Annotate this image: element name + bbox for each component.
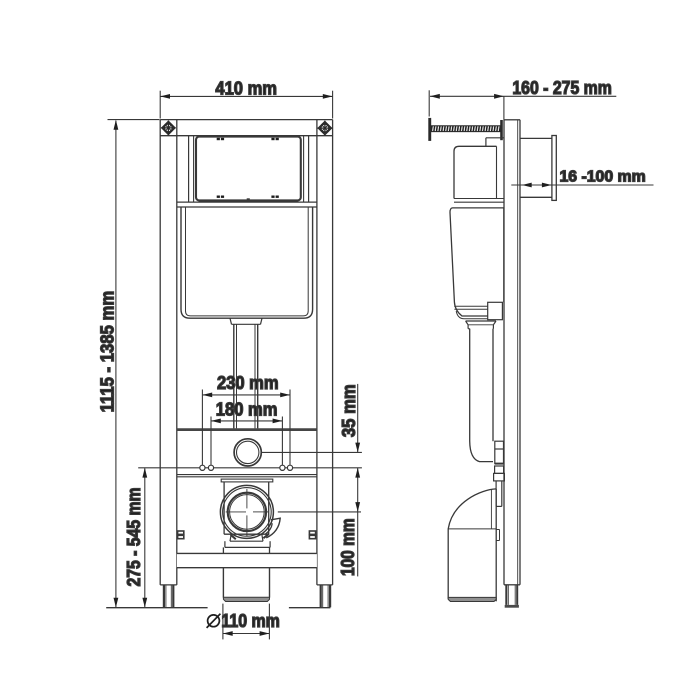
svg-text:100 mm: 100 mm	[338, 518, 358, 576]
svg-text:275 - 545 mm: 275 - 545 mm	[124, 487, 144, 586]
svg-text:180 mm: 180 mm	[216, 399, 278, 419]
svg-text:160 - 275 mm: 160 - 275 mm	[512, 78, 612, 98]
svg-text:410 mm: 410 mm	[215, 79, 277, 99]
svg-text:110 mm: 110 mm	[221, 611, 280, 631]
svg-text:16 -100 mm: 16 -100 mm	[559, 168, 645, 185]
svg-text:35 mm: 35 mm	[339, 384, 359, 437]
svg-text:230 mm: 230 mm	[217, 373, 279, 393]
svg-text:1115 - 1385 mm: 1115 - 1385 mm	[97, 291, 117, 413]
